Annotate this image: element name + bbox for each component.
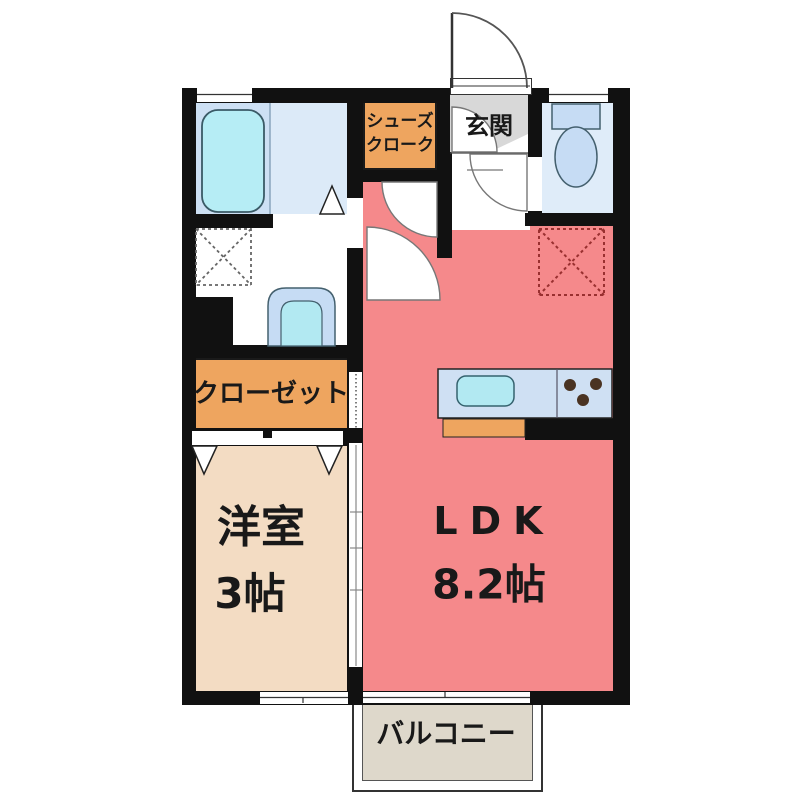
- washing-machine-pan-icon: [196, 229, 251, 285]
- entrance-label: 玄関: [465, 114, 513, 138]
- western-room-name: 洋室: [217, 506, 305, 550]
- ldk-name: LDK: [433, 502, 554, 540]
- ldk-size: 8.2帖: [432, 565, 546, 606]
- closet-door-center-tick: [263, 431, 272, 438]
- washroom-door-swing: [382, 182, 437, 237]
- ldk-door-swing: [367, 227, 440, 300]
- bathtub-icon: [202, 110, 264, 212]
- shoe-closet-label-line2: クローク: [366, 138, 434, 155]
- balcony-label: バルコニー: [376, 720, 515, 748]
- toilet-tank-icon: [552, 104, 600, 129]
- stove-burner-icon: [577, 394, 589, 406]
- bathroom-folding-door-icon: [320, 186, 344, 214]
- closet-folding-door-icon: [192, 446, 217, 474]
- refrigerator-space-icon: [539, 229, 604, 295]
- corridor-door-swing: [470, 154, 527, 211]
- stove-burner-icon: [590, 378, 602, 390]
- washbasin-bowl-icon: [281, 301, 322, 346]
- shoe-closet-label-line1: シューズ: [366, 114, 433, 131]
- stove-burner-icon: [564, 379, 576, 391]
- kitchen-base-strip: [443, 419, 525, 437]
- front-door-arc: [452, 13, 527, 88]
- western-room-size: 3帖: [214, 573, 285, 615]
- closet-folding-door-icon: [317, 446, 342, 474]
- toilet-bowl-icon: [555, 127, 597, 187]
- sliding-door-lines: [350, 445, 362, 666]
- floorplan: 玄関 シューズ クローク クローゼット 洋室 3帖 LDK 8.2帖 バルコニー: [0, 0, 800, 800]
- kitchen-sink-icon: [457, 376, 514, 406]
- closet-label: クローゼット: [193, 381, 349, 407]
